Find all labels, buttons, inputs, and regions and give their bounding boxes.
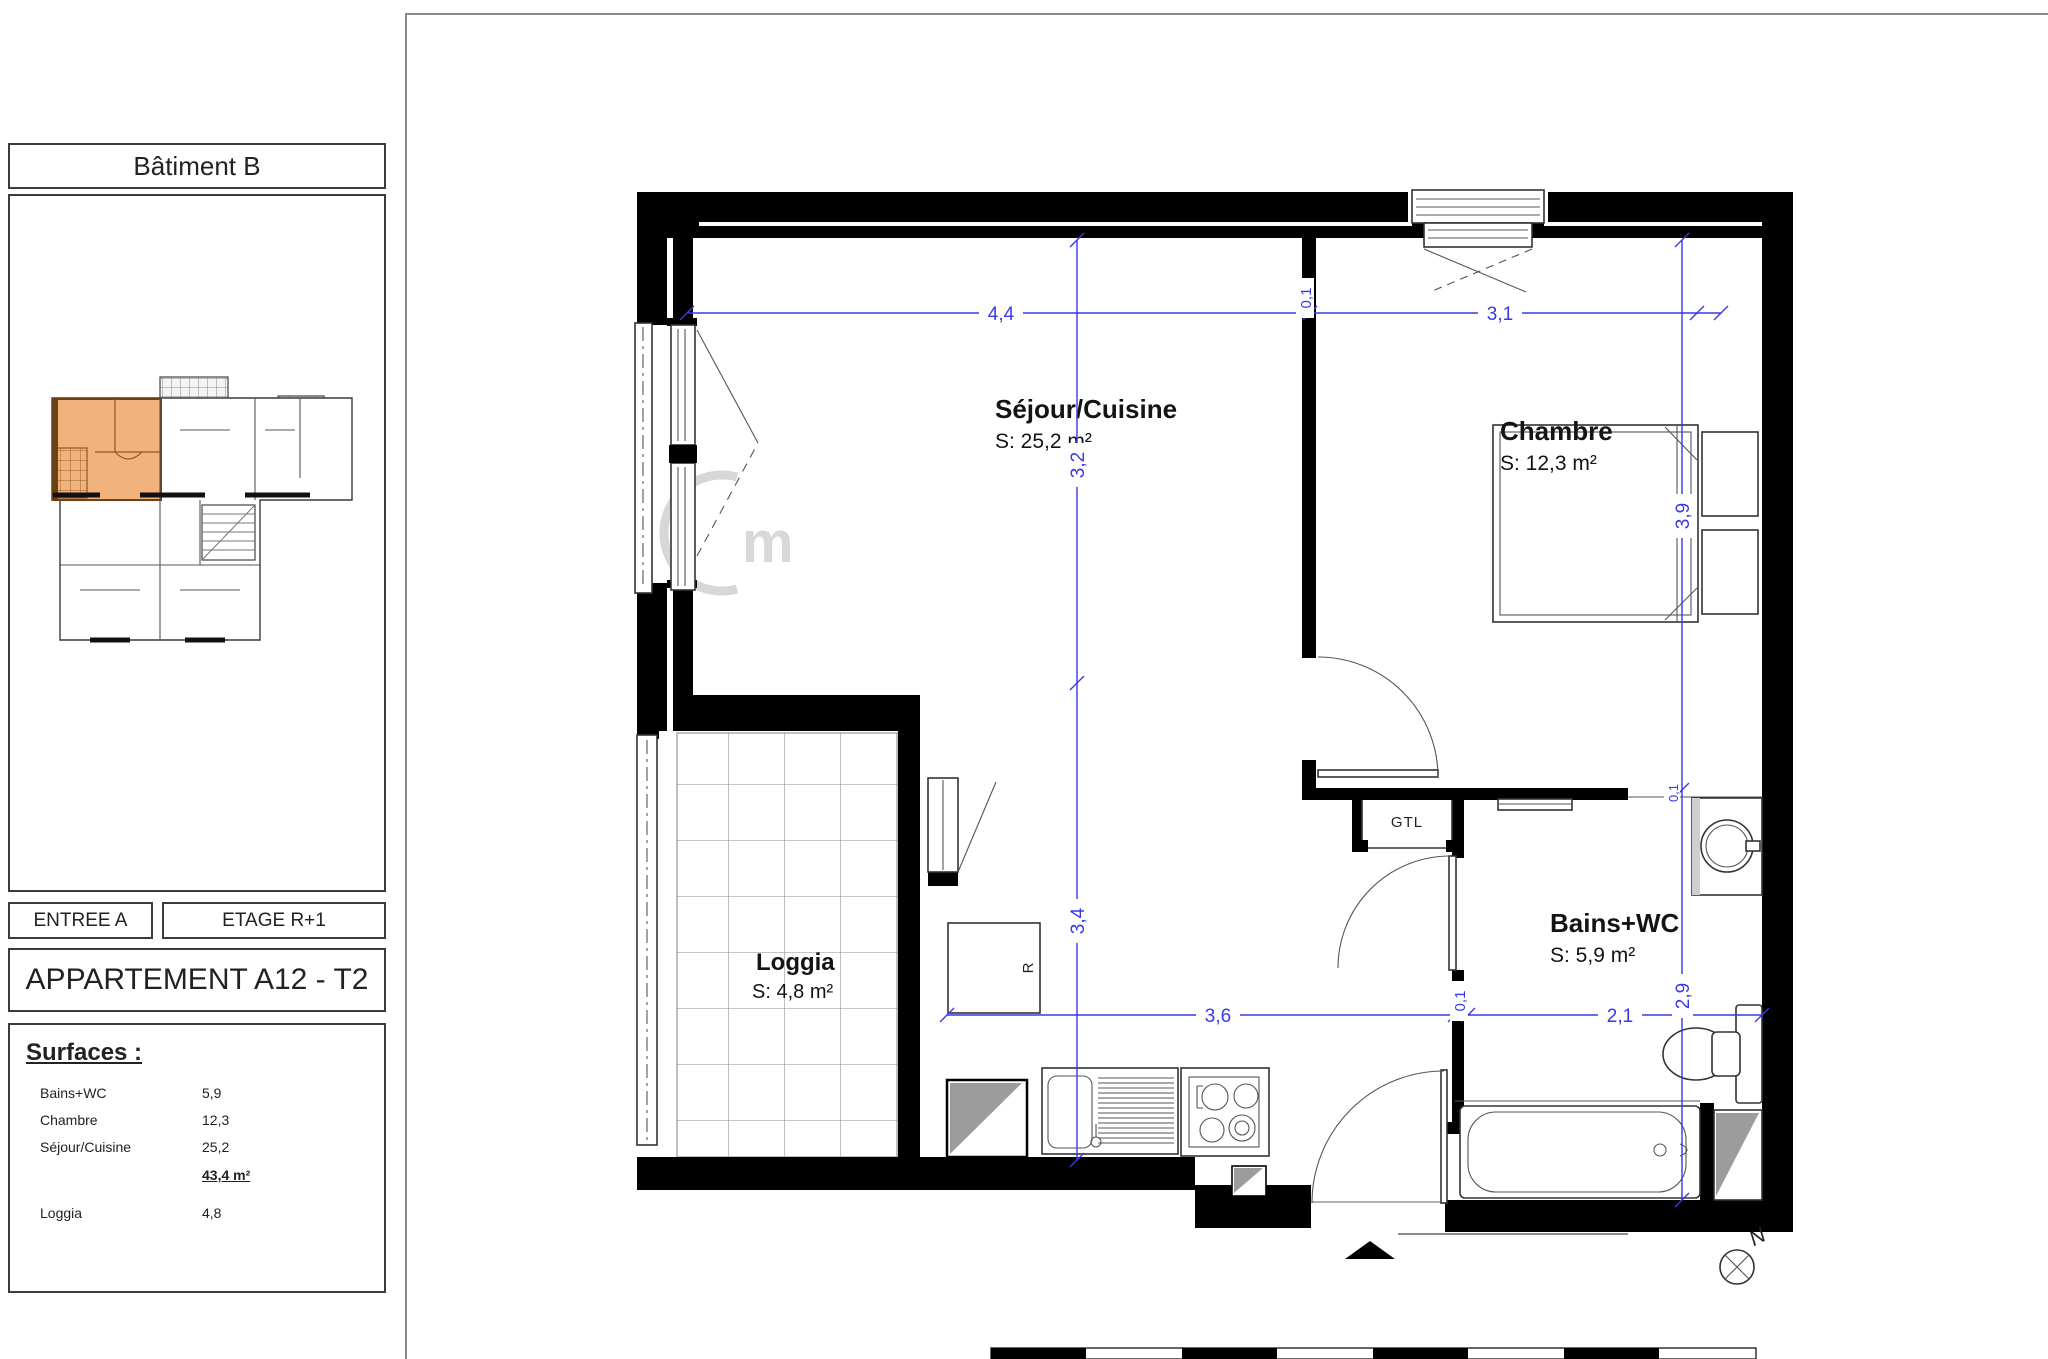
dim-44: 4,4 (988, 304, 1015, 325)
dim-01-bath: 0,1 (1452, 991, 1469, 1012)
gtl-label: GTL (1391, 814, 1423, 831)
fridge: R (948, 923, 1040, 1013)
dim-21: 2,1 (1607, 1006, 1633, 1027)
toilet (1663, 1005, 1762, 1103)
towel-shelf (1498, 799, 1572, 810)
watermark-letter: m (742, 510, 794, 575)
floor-plan: m (635, 190, 1793, 1359)
dim-31: 3,1 (1487, 304, 1513, 325)
dim-01-wall: 0,1 (1666, 784, 1681, 802)
dim-01-top: 0,1 (1298, 288, 1315, 309)
room-area-chambre: S: 12,3 m² (1500, 452, 1597, 475)
minimap-stairwell (202, 505, 255, 560)
entrance-arrow (1345, 1241, 1395, 1259)
bathroom-door (1338, 856, 1456, 970)
loggia-window (637, 735, 657, 1145)
stove-duct (1232, 1166, 1266, 1196)
dim-39: 3,9 (1673, 503, 1694, 529)
room-label-sejour: Séjour/Cuisine (995, 394, 1177, 424)
dim-32: 3,2 (1068, 452, 1089, 478)
chambre-window (1412, 190, 1544, 292)
room-label-loggia: Loggia (756, 949, 835, 976)
minimap (52, 377, 352, 640)
dim-36: 3,6 (1205, 1006, 1231, 1027)
floor-plan-sheet: { "sidebar": { "building_title": "Bâtime… (0, 0, 2048, 1359)
loggia-tiles (677, 733, 898, 1157)
minimap-highlighted-apartment (53, 399, 161, 500)
nightstand (1702, 432, 1758, 516)
nightstand (1702, 530, 1758, 614)
chambre-door (1318, 657, 1438, 777)
bathtub (1455, 1101, 1700, 1198)
washbasin (1692, 798, 1762, 895)
entry-door (1312, 1070, 1447, 1203)
room-label-chambre: Chambre (1500, 416, 1613, 446)
dim-29: 2,9 (1673, 983, 1694, 1009)
loggia-door (928, 778, 996, 872)
kitchen-sink (1042, 1068, 1178, 1154)
fridge-label: R (1020, 962, 1037, 973)
room-label-bains: Bains+WC (1550, 908, 1680, 938)
gtl-closet: GTL (1356, 800, 1458, 852)
room-area-bains: S: 5,9 m² (1550, 944, 1635, 967)
north-compass: N (1720, 1223, 1770, 1284)
french-window (635, 323, 758, 593)
stove (1181, 1068, 1269, 1156)
room-area-loggia: S: 4,8 m² (752, 981, 833, 1003)
scale-bar (991, 1348, 1756, 1359)
bathroom-duct (1714, 1110, 1762, 1200)
dim-34: 3,4 (1068, 907, 1089, 934)
kitchen-duct (947, 1080, 1027, 1157)
plan-canvas: m (0, 0, 2048, 1359)
